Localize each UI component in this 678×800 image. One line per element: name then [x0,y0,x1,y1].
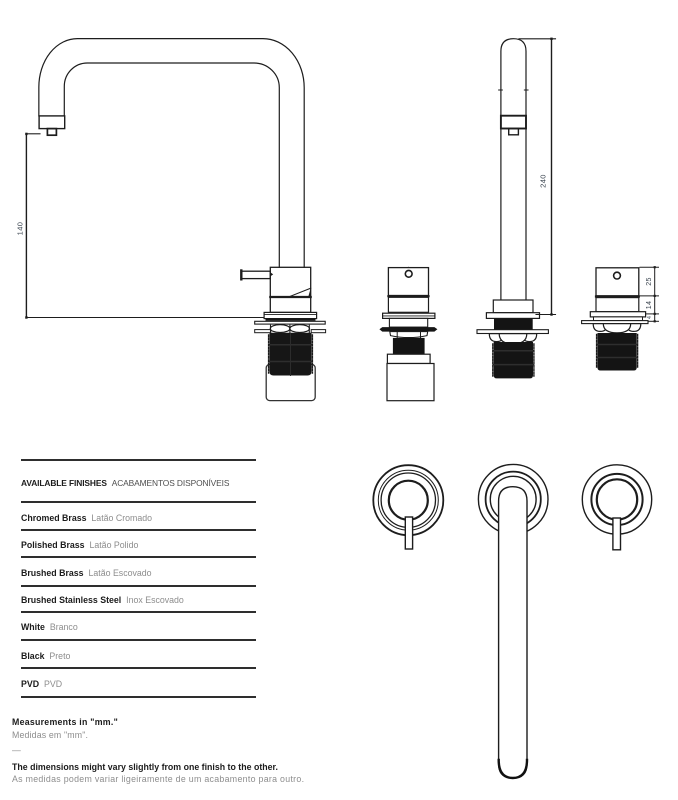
svg-text:14: 14 [646,301,653,310]
svg-text:240: 240 [539,174,548,188]
svg-text:25: 25 [646,277,653,286]
svg-text:140: 140 [15,222,24,236]
svg-text:4: 4 [647,316,653,319]
